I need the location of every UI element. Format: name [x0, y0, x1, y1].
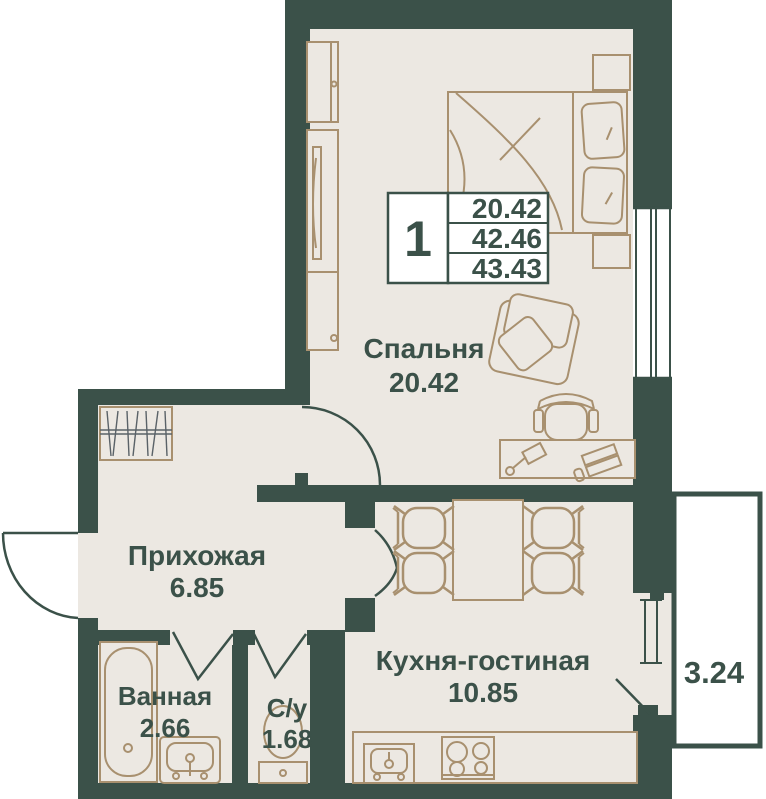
stove-icon — [442, 737, 494, 779]
area-row-total-living: 20.42 — [472, 193, 542, 224]
chair-icon — [523, 506, 584, 550]
nightstand-icon — [593, 235, 630, 268]
area-row-apartment: 42.46 — [472, 223, 542, 254]
bedroom-area: 20.42 — [389, 367, 459, 398]
kitchen-sink-icon — [364, 744, 414, 783]
bathroom-area: 2.66 — [140, 713, 191, 743]
wall-right-middle — [633, 378, 672, 593]
wall-left-upper — [78, 389, 98, 533]
floorplan-page: 1 20.42 42.46 43.43 Спальня 20.42 Прихож… — [0, 0, 766, 799]
hallway-furniture — [100, 407, 172, 460]
floor-plan-svg: 1 20.42 42.46 43.43 Спальня 20.42 Прихож… — [0, 0, 766, 799]
nightstand-icon — [593, 55, 630, 90]
wardrobe-icon — [100, 407, 172, 460]
wall-right-lower — [633, 715, 672, 783]
bathroom-label: Ванная — [118, 681, 212, 711]
chair-icon — [393, 551, 454, 595]
balcony — [674, 494, 760, 746]
wall-sanitary-top-b — [233, 630, 255, 645]
bathroom-sink-icon — [160, 737, 220, 783]
chair-icon — [523, 551, 584, 595]
hallway-label: Прихожая — [128, 540, 266, 571]
wall-hall-kitchen-b — [345, 598, 375, 632]
bedroom-window-icon — [633, 208, 672, 378]
dining-table-icon — [453, 500, 523, 600]
cabinet-icon — [307, 272, 338, 350]
kitchen-label: Кухня-гостиная — [376, 645, 591, 676]
wall-bottom — [78, 783, 672, 799]
wall-right-upper — [633, 0, 672, 208]
wall-hall-kitchen-a — [345, 502, 375, 528]
balcony-area: 3.24 — [684, 655, 745, 690]
wc-area: 1.68 — [262, 724, 313, 754]
wall-balcony-stub-top — [650, 591, 664, 600]
wall-bedroom-kitchen — [257, 485, 637, 502]
unit-number: 1 — [404, 211, 432, 267]
bedroom-label: Спальня — [364, 333, 485, 364]
kitchen-area: 10.85 — [448, 677, 518, 708]
wall-wc-kitchen — [310, 630, 345, 783]
area-row-total: 43.43 — [472, 253, 542, 284]
wall-top — [285, 0, 672, 29]
info-card: 1 20.42 42.46 43.43 — [388, 193, 548, 284]
entrance-door-icon — [3, 533, 78, 618]
wall-bath-wc — [232, 645, 248, 783]
tv-console-icon — [307, 130, 338, 272]
desk-icon — [500, 440, 635, 482]
bedroom-door-leaf — [295, 473, 308, 486]
chair-icon — [393, 506, 454, 550]
wc-label: С/у — [267, 693, 308, 723]
hallway-area: 6.85 — [170, 572, 225, 603]
wall-left-lower — [78, 618, 98, 783]
armchair-icon — [487, 291, 582, 386]
cabinet-icon — [307, 42, 338, 122]
wall-hallway-top — [78, 389, 300, 405]
bathtub-icon — [100, 642, 157, 782]
